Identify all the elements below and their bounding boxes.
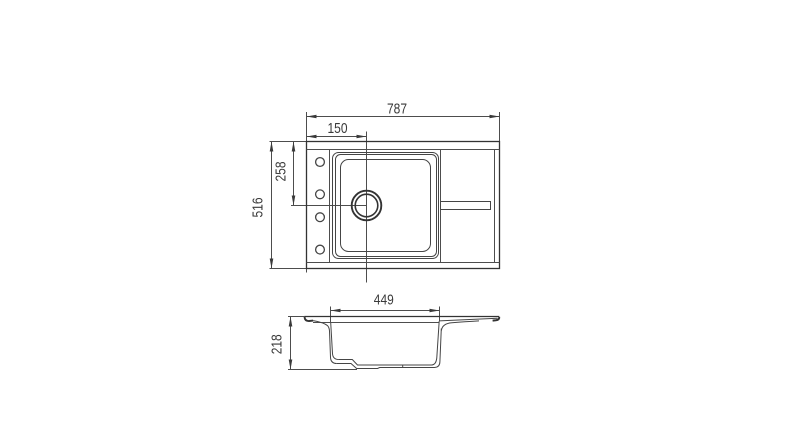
svg-text:150: 150 [328, 120, 348, 137]
svg-text:449: 449 [374, 292, 394, 309]
svg-text:516: 516 [250, 198, 267, 218]
svg-text:218: 218 [269, 334, 286, 354]
svg-text:258: 258 [273, 162, 290, 182]
svg-text:787: 787 [387, 101, 407, 118]
